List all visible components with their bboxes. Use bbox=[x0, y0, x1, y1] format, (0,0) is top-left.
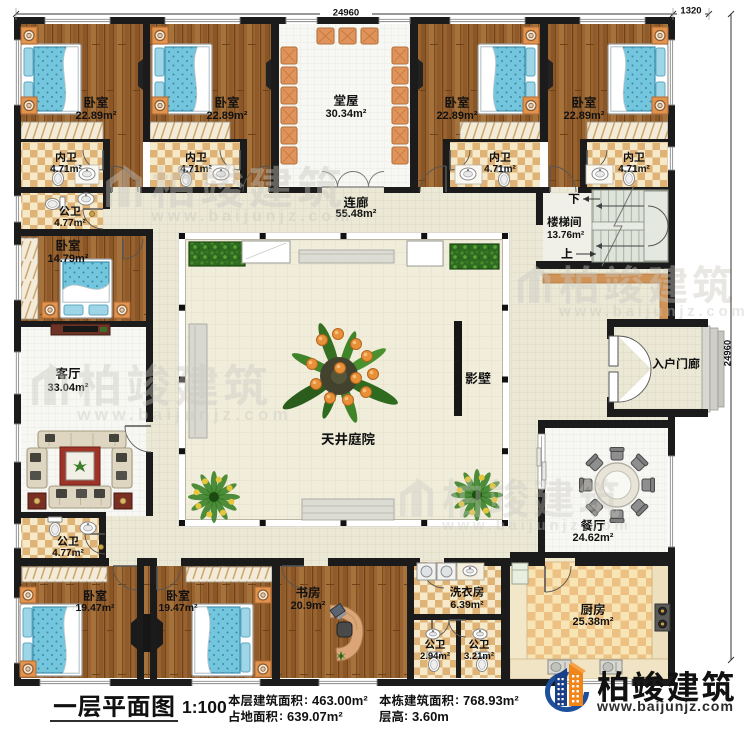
svg-text:24960: 24960 bbox=[723, 340, 734, 366]
svg-text:www.baijunjz.com: www.baijunjz.com bbox=[76, 405, 292, 424]
svg-text:22.89m²: 22.89m² bbox=[564, 110, 605, 122]
svg-text:768.93m²: 768.93m² bbox=[463, 693, 519, 708]
svg-text::: : bbox=[404, 709, 408, 723]
svg-text:30.34m²: 30.34m² bbox=[326, 108, 367, 120]
svg-text:463.00m²: 463.00m² bbox=[312, 693, 368, 708]
svg-text:www.baijunjz.com: www.baijunjz.com bbox=[441, 517, 631, 534]
svg-text:6.39m²: 6.39m² bbox=[450, 599, 484, 611]
svg-text:www.baijunjz.com: www.baijunjz.com bbox=[558, 303, 748, 320]
svg-text::: : bbox=[304, 693, 308, 707]
svg-text:25.38m²: 25.38m² bbox=[573, 616, 614, 628]
svg-text:639.07m²: 639.07m² bbox=[287, 709, 343, 724]
svg-text:19.47m²: 19.47m² bbox=[75, 602, 115, 614]
svg-text:22.89m²: 22.89m² bbox=[76, 110, 117, 122]
svg-text:22.89m²: 22.89m² bbox=[207, 110, 248, 122]
svg-text:4.71m²: 4.71m² bbox=[50, 164, 82, 175]
svg-text:2.94m²: 2.94m² bbox=[420, 651, 450, 662]
svg-text:19.47m²: 19.47m² bbox=[158, 602, 198, 614]
svg-text:24960: 24960 bbox=[333, 8, 359, 19]
svg-text:4.77m²: 4.77m² bbox=[52, 548, 84, 559]
svg-text:www.baijunjz.com: www.baijunjz.com bbox=[596, 699, 734, 715]
svg-text:22.89m²: 22.89m² bbox=[437, 110, 478, 122]
svg-text:4.71m²: 4.71m² bbox=[484, 164, 516, 175]
svg-text:www.baijunjz.com: www.baijunjz.com bbox=[150, 208, 353, 225]
svg-text:1:100: 1:100 bbox=[182, 697, 227, 717]
svg-text:3.60m: 3.60m bbox=[412, 709, 449, 724]
svg-text:24.62m²: 24.62m² bbox=[573, 532, 614, 544]
svg-text:13.76m²: 13.76m² bbox=[547, 230, 585, 241]
svg-text::: : bbox=[279, 709, 283, 723]
svg-text:1320: 1320 bbox=[680, 6, 701, 17]
svg-text:4.77m²: 4.77m² bbox=[54, 218, 86, 229]
svg-text:4.71m²: 4.71m² bbox=[618, 164, 650, 175]
svg-text:3.21m²: 3.21m² bbox=[464, 651, 494, 662]
svg-text::: : bbox=[455, 693, 459, 707]
svg-text:14.79m²: 14.79m² bbox=[48, 253, 89, 265]
svg-text:20.9m²: 20.9m² bbox=[291, 600, 326, 612]
